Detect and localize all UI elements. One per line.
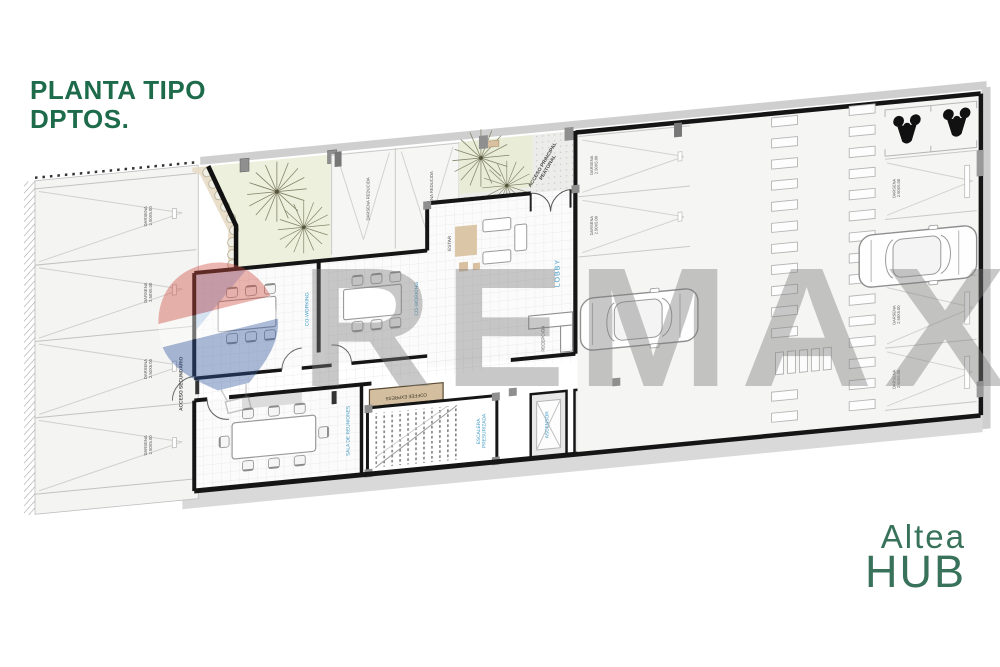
logo-line2: HUB	[865, 551, 966, 592]
elevator-label: ASCENSOR	[545, 410, 551, 438]
column	[565, 127, 574, 141]
floorplan-page: PLANTA TIPO DPTOS.	[0, 0, 1000, 667]
table	[218, 296, 276, 332]
secondary-access-label: ACCESO SECUNDARIO	[178, 356, 184, 411]
pavement-bars	[776, 347, 832, 374]
page-title-line1: PLANTA TIPO	[30, 76, 206, 105]
table	[232, 415, 316, 459]
garden	[192, 150, 336, 273]
side-table	[473, 263, 480, 271]
plan-rotated-group: DARSENA2.50X5.00 DARSENA2.50X5.00 DARSEN…	[24, 80, 991, 524]
coworking-room-b: CO-WORKING	[325, 251, 428, 366]
stall-label: DARSENA2.50X5.00	[892, 369, 902, 390]
stall-label: DARSENA2.50X5.00	[589, 215, 599, 236]
stall-label: DARSENA2.50X5.00	[589, 155, 599, 176]
stall-label: DARSENA2.50X5.00	[892, 304, 902, 325]
lobby: ESTAR LOBBY RECEPCIÓN	[427, 189, 575, 368]
stall-reduced-label: DARSENA REDUCIDA	[365, 177, 370, 221]
door-leaf	[332, 391, 337, 405]
lobby-label: LOBBY	[555, 259, 562, 288]
column	[674, 123, 682, 138]
column	[479, 135, 488, 149]
door-leaf	[195, 380, 199, 394]
garage: DARSENA2.50X5.00 DARSENA2.50X5.00	[577, 93, 983, 452]
meeting-label: SALA DE REUNIONES	[346, 406, 352, 457]
stall-label: DARSENA2.50X5.00	[892, 178, 902, 199]
coworking-label: CO-WORKING	[414, 281, 420, 315]
column	[240, 158, 249, 172]
gate	[977, 381, 984, 398]
coworking-room-a: CO-WORKING	[194, 261, 318, 378]
stall-label: DARSENA2.50X5.00	[143, 282, 153, 303]
page-title: PLANTA TIPO DPTOS.	[30, 76, 206, 133]
stall-label: DARSENA2.50X5.00	[143, 358, 153, 379]
coworking-label: CO-WORKING	[305, 292, 311, 326]
lounge-label: ESTAR	[447, 235, 452, 251]
page-title-line2: DPTOS.	[30, 105, 206, 134]
side-table	[459, 262, 468, 272]
table	[344, 284, 402, 320]
rug	[455, 225, 477, 257]
left-parking-block: DARSENA2.50X5.00 DARSENA2.50X5.00 DARSEN…	[24, 162, 198, 515]
column	[335, 151, 342, 167]
stall-label: DARSENA2.50X5.00	[143, 434, 153, 455]
stall-label: DARSENA2.50X5.00	[143, 205, 153, 226]
altea-hub-logo: Altea HUB	[865, 520, 966, 592]
gate	[977, 150, 984, 177]
